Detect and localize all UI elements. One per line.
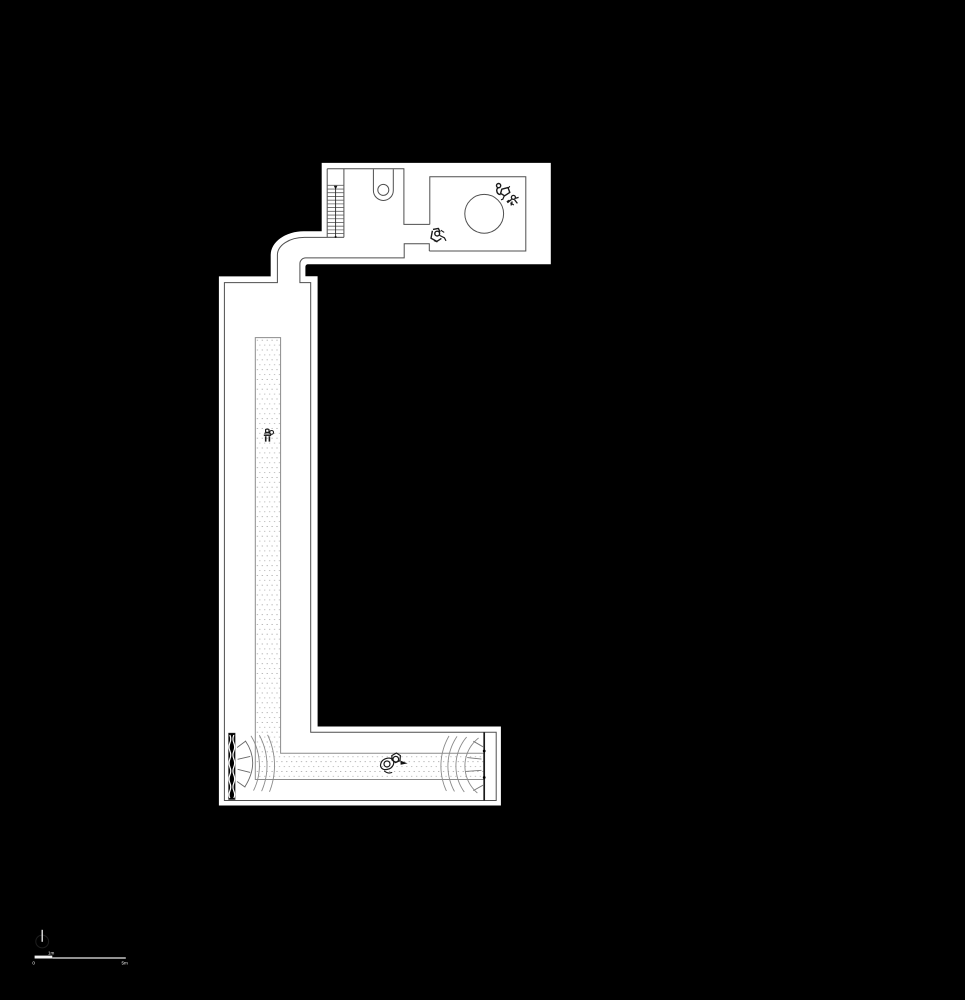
svg-text:5m: 5m	[122, 960, 129, 965]
svg-text:1m: 1m	[48, 951, 55, 956]
svg-text:0: 0	[32, 960, 35, 965]
